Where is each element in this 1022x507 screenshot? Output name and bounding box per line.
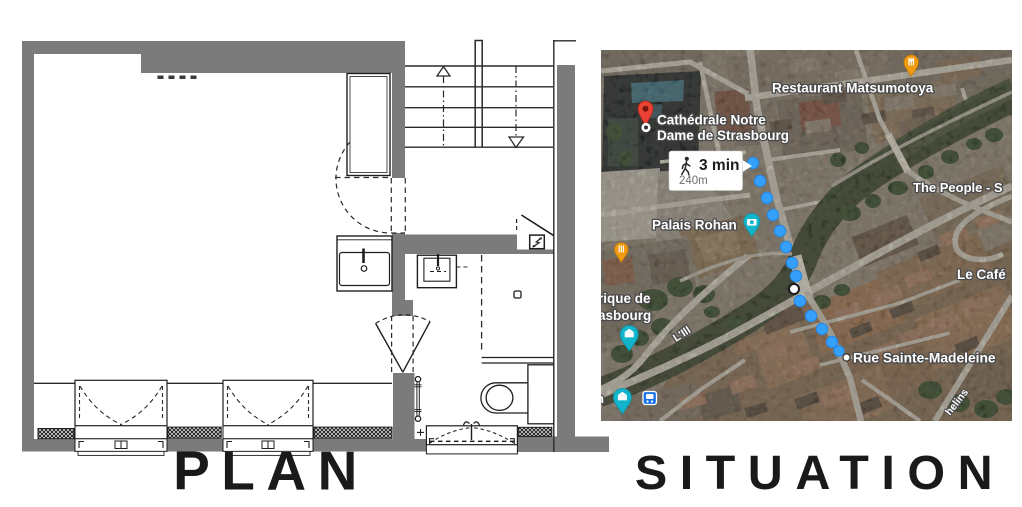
svg-text:Dame de Strasbourg: Dame de Strasbourg: [657, 128, 789, 143]
svg-text:PLAN: PLAN: [173, 440, 369, 502]
svg-text:3 min: 3 min: [699, 157, 739, 174]
svg-text:The People - S: The People - S: [913, 180, 1003, 195]
svg-text:Rue Sainte-Madeleine: Rue Sainte-Madeleine: [853, 351, 996, 366]
svg-text:rique de: rique de: [598, 291, 651, 306]
svg-text:Cathédrale Notre: Cathédrale Notre: [657, 113, 766, 128]
svg-text:Restaurant Matsumotoya: Restaurant Matsumotoya: [772, 81, 934, 96]
svg-text:Le Café: Le Café: [957, 267, 1006, 282]
svg-text:SITUATION: SITUATION: [635, 446, 1005, 500]
svg-text:Palais Rohan: Palais Rohan: [652, 218, 737, 233]
svg-text:asbourg: asbourg: [598, 308, 651, 323]
svg-text:240m: 240m: [679, 175, 708, 187]
